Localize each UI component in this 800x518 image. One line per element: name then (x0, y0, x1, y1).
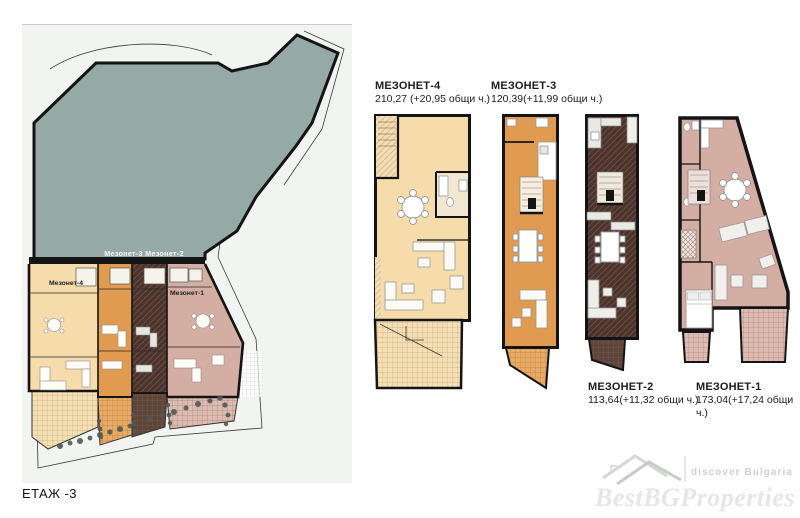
plan4-label: МЕЗОНЕТ-4 210,27 (+20,95 общи ч.) (375, 80, 490, 106)
plan1-label: МЕЗОНЕТ-1 173,04(+17,24 общи ч.) (696, 381, 800, 420)
plan-mezonet-3 (500, 112, 562, 392)
plan2-terrace (589, 339, 625, 370)
dining-table-round (196, 314, 210, 328)
dining-table (595, 232, 625, 263)
site-plan-panel: Мезонет-3 Мезонет-2 (22, 24, 352, 483)
watermark-brand: BestBGProperties (595, 483, 795, 512)
watermark: discover Bulgaria BestBGProperties (595, 446, 800, 512)
plan4-area: 210,27 (+20,95 общи ч.) (375, 93, 490, 106)
stairs-hatch (376, 116, 398, 178)
site-unit4-terrace (32, 391, 98, 449)
plan-mezonet-4 (372, 112, 474, 392)
plan-mezonet-1 (668, 112, 795, 368)
band-label: Мезонет-3 Мезонет-2 (104, 249, 184, 258)
site-plan-drawing: Мезонет-3 Мезонет-2 (22, 25, 352, 483)
stairs (688, 170, 710, 204)
dining-table (513, 230, 543, 262)
plan1-area: 173,04(+17,24 общи ч.) (696, 394, 800, 420)
plan3-title: МЕЗОНЕТ-3 (491, 80, 602, 93)
stairs (520, 177, 543, 213)
plan2-title: МЕЗОНЕТ-2 (588, 381, 699, 394)
house-roof-icon (603, 456, 681, 484)
watermark-tagline: discover Bulgaria (691, 466, 793, 478)
floor-title: ЕТАЖ -3 (22, 486, 77, 501)
plan-mezonet-2 (583, 112, 641, 374)
plan2-label: МЕЗОНЕТ-2 113,64(+11,32 общи ч.) (588, 381, 699, 407)
plan4-title: МЕЗОНЕТ-4 (375, 80, 490, 93)
plan1-terrace-left (683, 332, 710, 362)
watermark-graphic: discover Bulgaria BestBGProperties (595, 446, 800, 512)
side-balcony-hatch (375, 257, 381, 320)
site-unit1-label: Мезонет-1 (170, 290, 204, 297)
stairs (597, 172, 623, 204)
plan3-label: МЕЗОНЕТ-3 120,39(+11,99 общи ч.) (491, 80, 602, 106)
building-north-wall (29, 257, 205, 264)
plan1-terrace-right (740, 308, 788, 362)
bed (686, 290, 712, 328)
site-unit1-strip (167, 264, 243, 397)
wardrobe-hatch (681, 230, 696, 258)
plan1-title: МЕЗОНЕТ-1 (696, 381, 800, 394)
plan3-terrace (506, 348, 549, 388)
plan3-area: 120,39(+11,99 общи ч.) (491, 93, 602, 106)
dining-table-round (48, 319, 61, 332)
plan4-terrace (375, 320, 462, 388)
site-unit4-label: Мезонет-4 (49, 280, 83, 287)
site-unit3-terrace (98, 397, 132, 445)
site-upper-volume (34, 35, 338, 259)
plan2-area: 113,64(+11,32 общи ч.) (588, 394, 699, 407)
listing-floorplan-image: Мезонет-3 Мезонет-2 (0, 0, 800, 518)
